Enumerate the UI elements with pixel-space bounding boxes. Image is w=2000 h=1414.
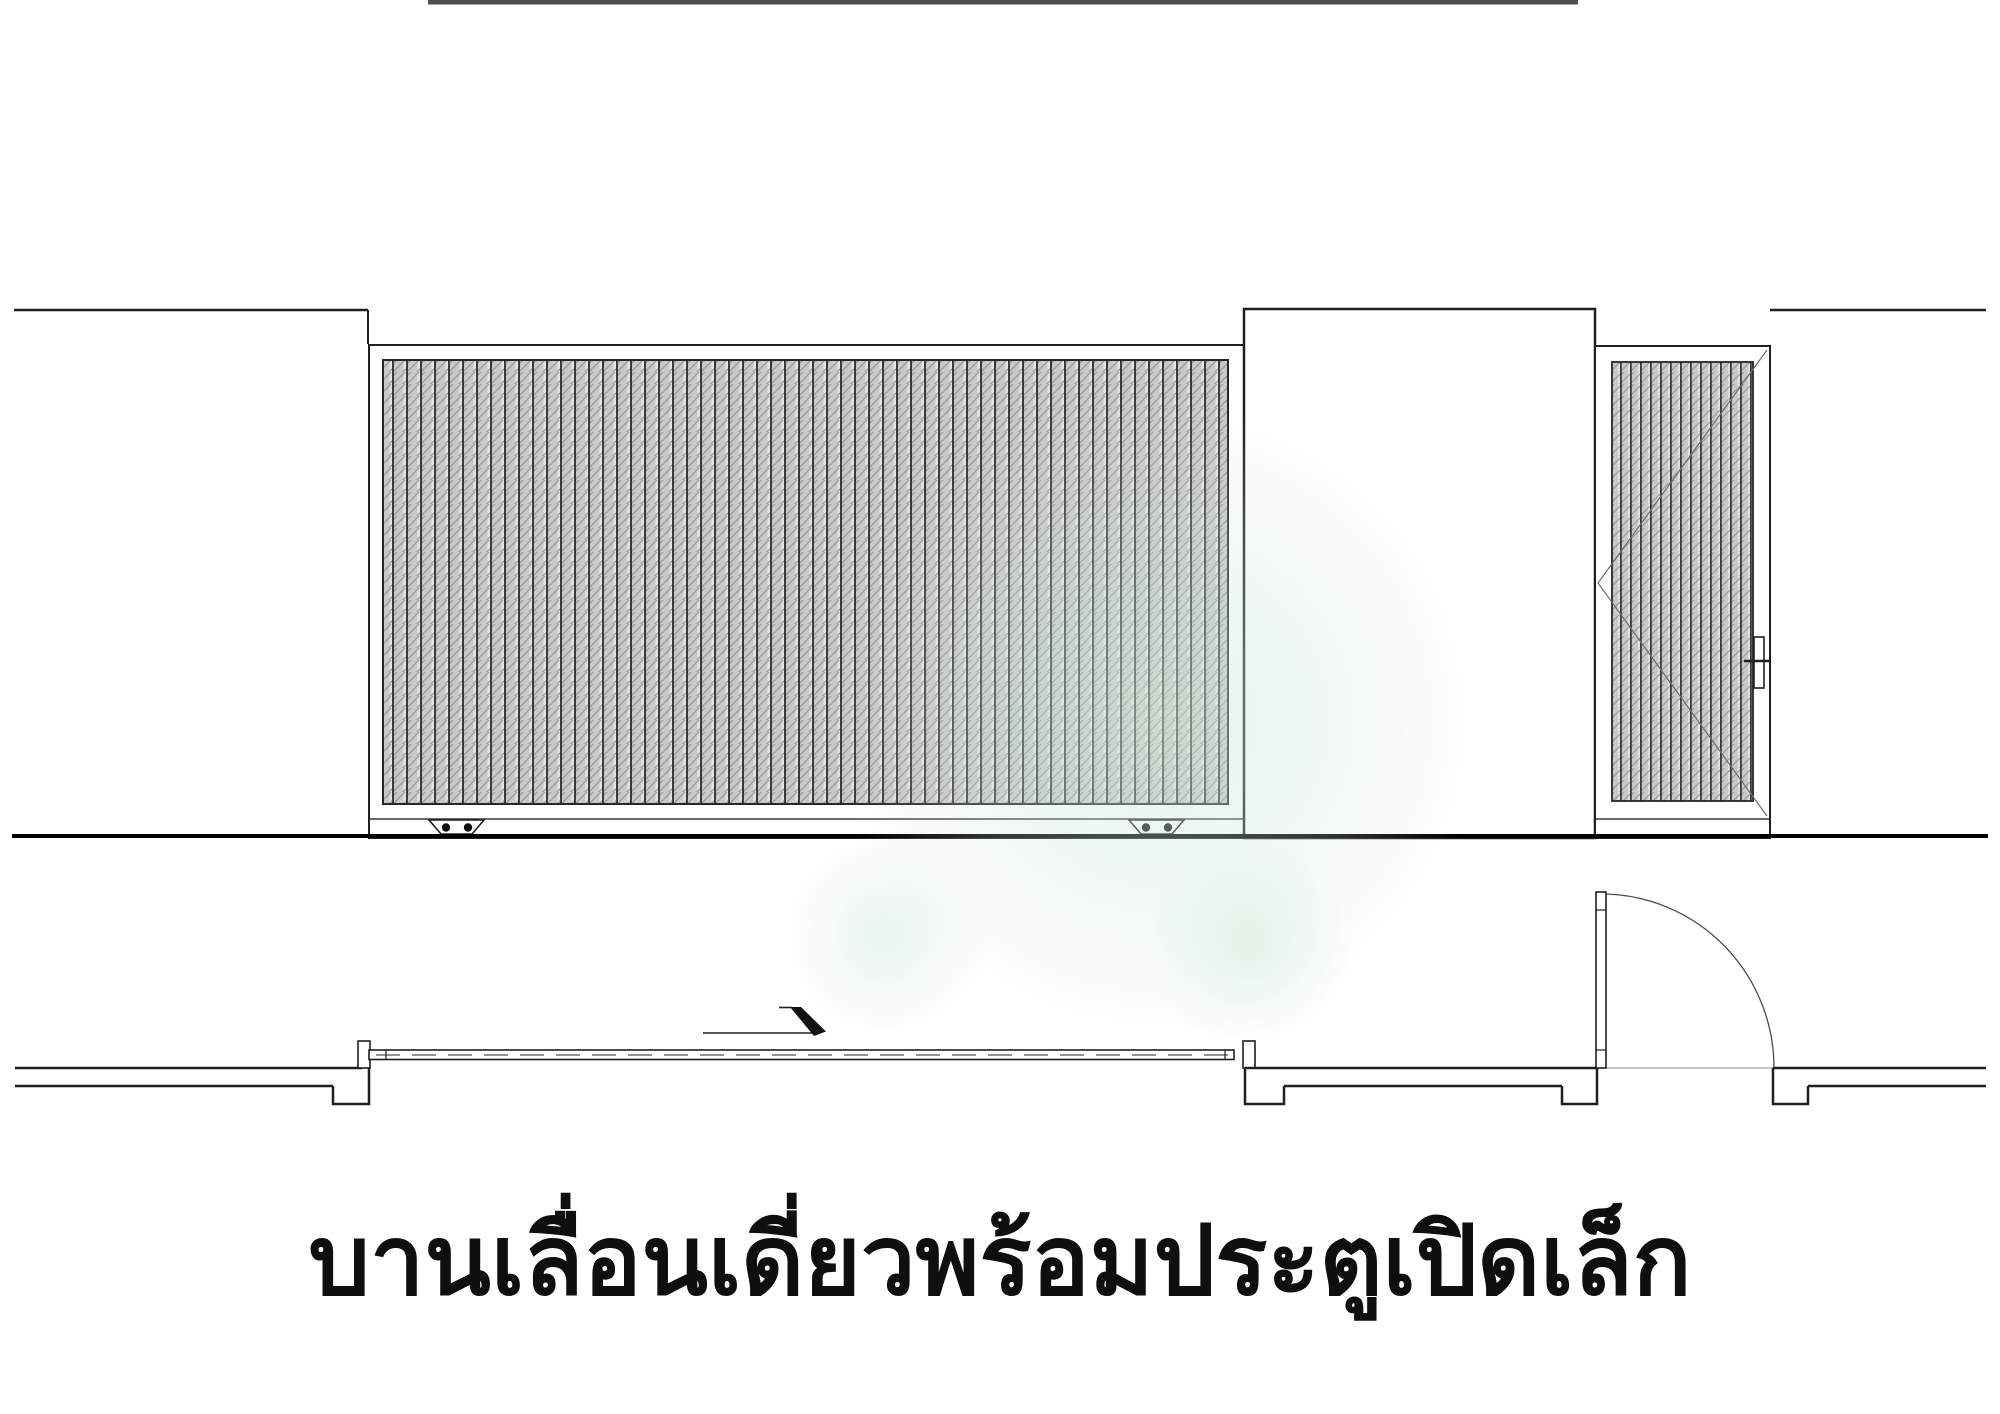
drawing-caption: บานเลื่อนเดี่ยวพร้อมประตูเปิดเล็ก <box>0 1205 2000 1317</box>
plan-door-leaf <box>1596 892 1606 1068</box>
plan-wall-left-foot <box>333 1068 369 1104</box>
title-block-edge <box>428 0 1578 5</box>
drawing-canvas: บานเลื่อนเดี่ยวพร้อมประตูเปิดเล็ก <box>0 0 2000 1414</box>
plan-door-swing-arc <box>1606 894 1774 1067</box>
side-door-infill-hatch <box>1612 362 1753 801</box>
plan-view <box>15 892 1986 1104</box>
side-door-handle-plate <box>1754 637 1764 688</box>
roller-right-bolt <box>1164 823 1172 831</box>
middle-pillar <box>1244 309 1595 838</box>
plan-guide-post-right <box>1243 1041 1255 1068</box>
roller-left-bolt <box>464 823 472 831</box>
plan-wall-mid-foot-right <box>1562 1068 1597 1104</box>
gate-technical-drawing <box>0 0 2000 1414</box>
roller-right-bolt <box>1142 823 1150 831</box>
slide-direction-arrow-head <box>790 1007 826 1036</box>
roller-left-bolt <box>442 823 450 831</box>
plan-wall-mid-foot-left <box>1245 1068 1284 1104</box>
front-elevation-view <box>12 309 1988 838</box>
sliding-gate-infill-hatch <box>383 360 1228 804</box>
plan-wall-right-foot <box>1773 1068 1808 1104</box>
